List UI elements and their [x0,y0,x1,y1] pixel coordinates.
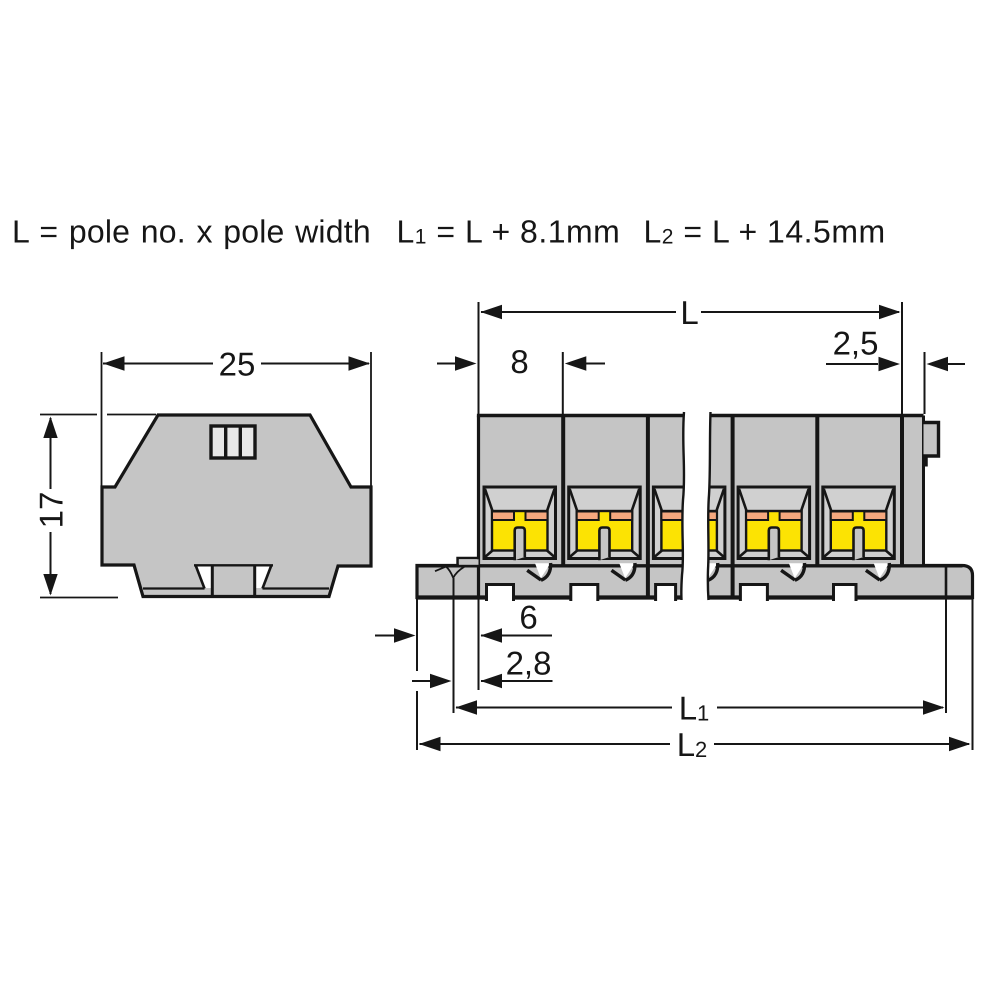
svg-text:17: 17 [33,492,70,529]
svg-text:8: 8 [510,343,528,380]
svg-text:L2: L2 [677,726,708,763]
svg-text:L2 = L + 14.5mm: L2 = L + 14.5mm [644,214,886,250]
svg-text:L = pole no. x pole width: L = pole no. x pole width [12,214,371,250]
svg-text:2,5: 2,5 [833,325,879,362]
svg-text:2,8: 2,8 [506,645,552,682]
svg-text:L: L [680,294,698,331]
svg-text:25: 25 [219,346,256,383]
svg-text:L1 = L + 8.1mm: L1 = L + 8.1mm [397,214,621,250]
svg-text:L1: L1 [679,690,710,727]
svg-text:6: 6 [519,599,537,636]
